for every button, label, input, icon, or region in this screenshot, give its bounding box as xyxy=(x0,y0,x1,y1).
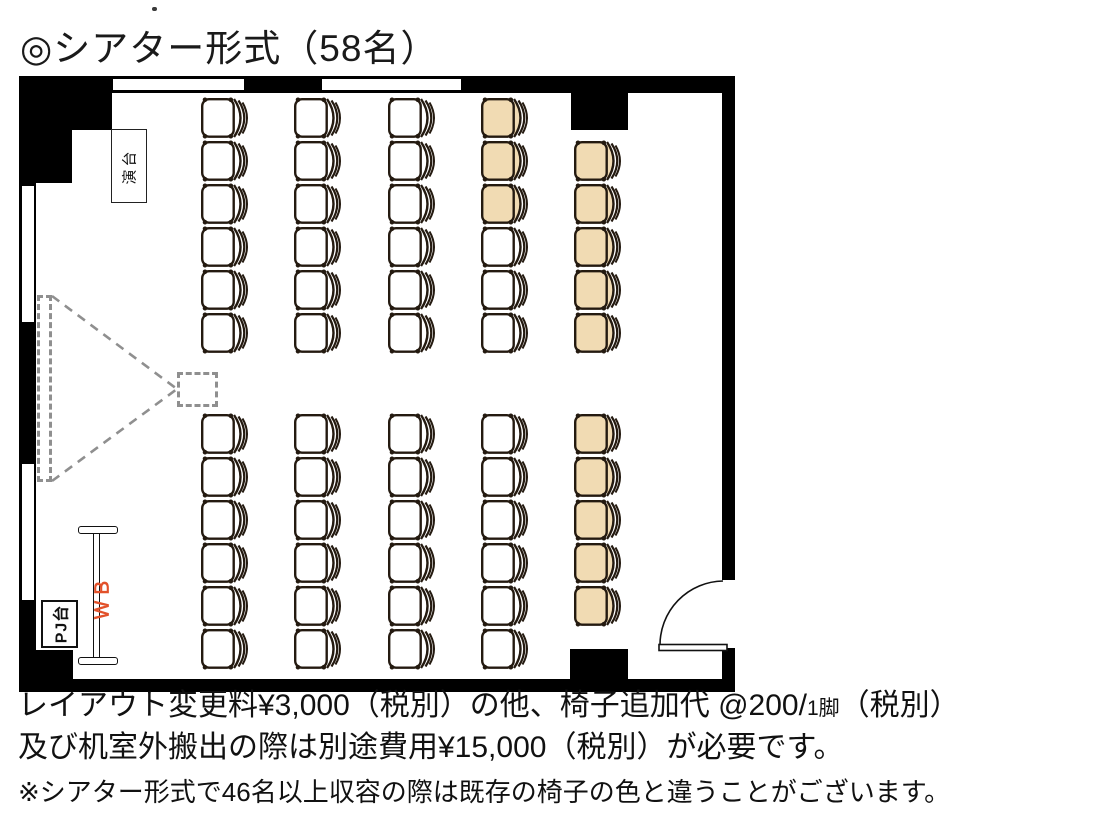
chair-standard xyxy=(480,312,532,354)
chair-additional xyxy=(573,456,625,498)
page-title: ◎シアター形式（58名） xyxy=(20,18,438,72)
chair-standard xyxy=(387,585,439,627)
chair-standard xyxy=(200,628,252,670)
pillar-top xyxy=(571,92,628,130)
door-swing-arc xyxy=(660,581,723,646)
chair-additional xyxy=(573,585,625,627)
chair-standard xyxy=(480,585,532,627)
chair-standard xyxy=(480,226,532,268)
chair-standard xyxy=(480,628,532,670)
chair-additional xyxy=(480,97,532,139)
chair-standard xyxy=(293,628,345,670)
projector-stand: PJ台 xyxy=(41,600,78,648)
door xyxy=(650,575,740,660)
chair-standard xyxy=(200,542,252,584)
note-line-1-small: 1脚 xyxy=(807,697,840,720)
chair-additional xyxy=(573,413,625,455)
chair-standard xyxy=(200,413,252,455)
whiteboard-bottom-cap xyxy=(78,657,118,665)
chair-standard xyxy=(293,542,345,584)
podium-label: 演台 xyxy=(119,148,140,184)
chair-standard xyxy=(200,226,252,268)
corner-top-left-b xyxy=(19,130,72,183)
chair-standard xyxy=(200,312,252,354)
chair-standard xyxy=(387,456,439,498)
note-line-1: レイアウト変更料¥3,000（税別）の他、椅子追加代 @200/1脚（税別） xyxy=(18,686,1103,728)
projector-outline xyxy=(177,372,218,407)
chair-standard xyxy=(387,628,439,670)
projection-screen xyxy=(37,295,52,482)
chair-standard xyxy=(387,542,439,584)
chair-standard xyxy=(387,97,439,139)
chair-standard xyxy=(293,312,345,354)
chair-standard xyxy=(480,542,532,584)
stray-dot xyxy=(152,7,157,11)
chair-additional xyxy=(573,312,625,354)
podium: 演台 xyxy=(111,129,147,203)
chair-additional xyxy=(573,269,625,311)
chair-standard xyxy=(387,183,439,225)
chair-standard xyxy=(200,585,252,627)
chair-standard xyxy=(200,183,252,225)
chair-standard xyxy=(387,499,439,541)
note-line-3: ※シアター形式で46名以上収容の際は既存の椅子の色と違うことがございます。 xyxy=(18,775,1103,809)
chair-standard xyxy=(293,226,345,268)
chair-standard xyxy=(200,97,252,139)
door-leaf xyxy=(659,645,727,651)
chair-additional xyxy=(480,140,532,182)
chair-additional xyxy=(573,542,625,584)
chair-standard xyxy=(387,269,439,311)
floorplan-page: ◎シアター形式（58名） 演台 xyxy=(0,0,1110,824)
chair-additional xyxy=(573,499,625,541)
note-line-2: 及び机室外搬出の際は別途費用¥15,000（税別）が必要です。 xyxy=(18,728,1103,767)
chair-standard xyxy=(293,183,345,225)
chair-additional xyxy=(573,140,625,182)
chair-standard xyxy=(480,269,532,311)
window-top-2 xyxy=(321,78,462,91)
chair-standard xyxy=(293,140,345,182)
projector-stand-label: PJ台 xyxy=(48,605,72,644)
chair-standard xyxy=(387,140,439,182)
chair-additional xyxy=(573,183,625,225)
chair-additional xyxy=(480,183,532,225)
whiteboard-label: ＷＢ xyxy=(88,575,115,619)
chair-standard xyxy=(480,456,532,498)
chair-additional xyxy=(573,226,625,268)
chair-standard xyxy=(480,499,532,541)
chair-standard xyxy=(293,456,345,498)
chair-standard xyxy=(293,585,345,627)
chair-standard xyxy=(293,97,345,139)
chair-standard xyxy=(200,456,252,498)
whiteboard: ＷＢ xyxy=(86,568,116,626)
chair-standard xyxy=(387,413,439,455)
chair-standard xyxy=(387,312,439,354)
chair-standard xyxy=(200,269,252,311)
chair-standard xyxy=(200,140,252,182)
chair-standard xyxy=(200,499,252,541)
chair-standard xyxy=(293,269,345,311)
chair-standard xyxy=(387,226,439,268)
window-top-1 xyxy=(112,78,245,91)
notes: レイアウト変更料¥3,000（税別）の他、椅子追加代 @200/1脚（税別） 及… xyxy=(18,686,1103,809)
wall-right-upper xyxy=(722,76,735,580)
whiteboard-top-cap xyxy=(78,526,118,534)
chair-standard xyxy=(480,413,532,455)
chair-standard xyxy=(293,413,345,455)
chair-standard xyxy=(293,499,345,541)
corner-top-left-a xyxy=(19,93,112,130)
